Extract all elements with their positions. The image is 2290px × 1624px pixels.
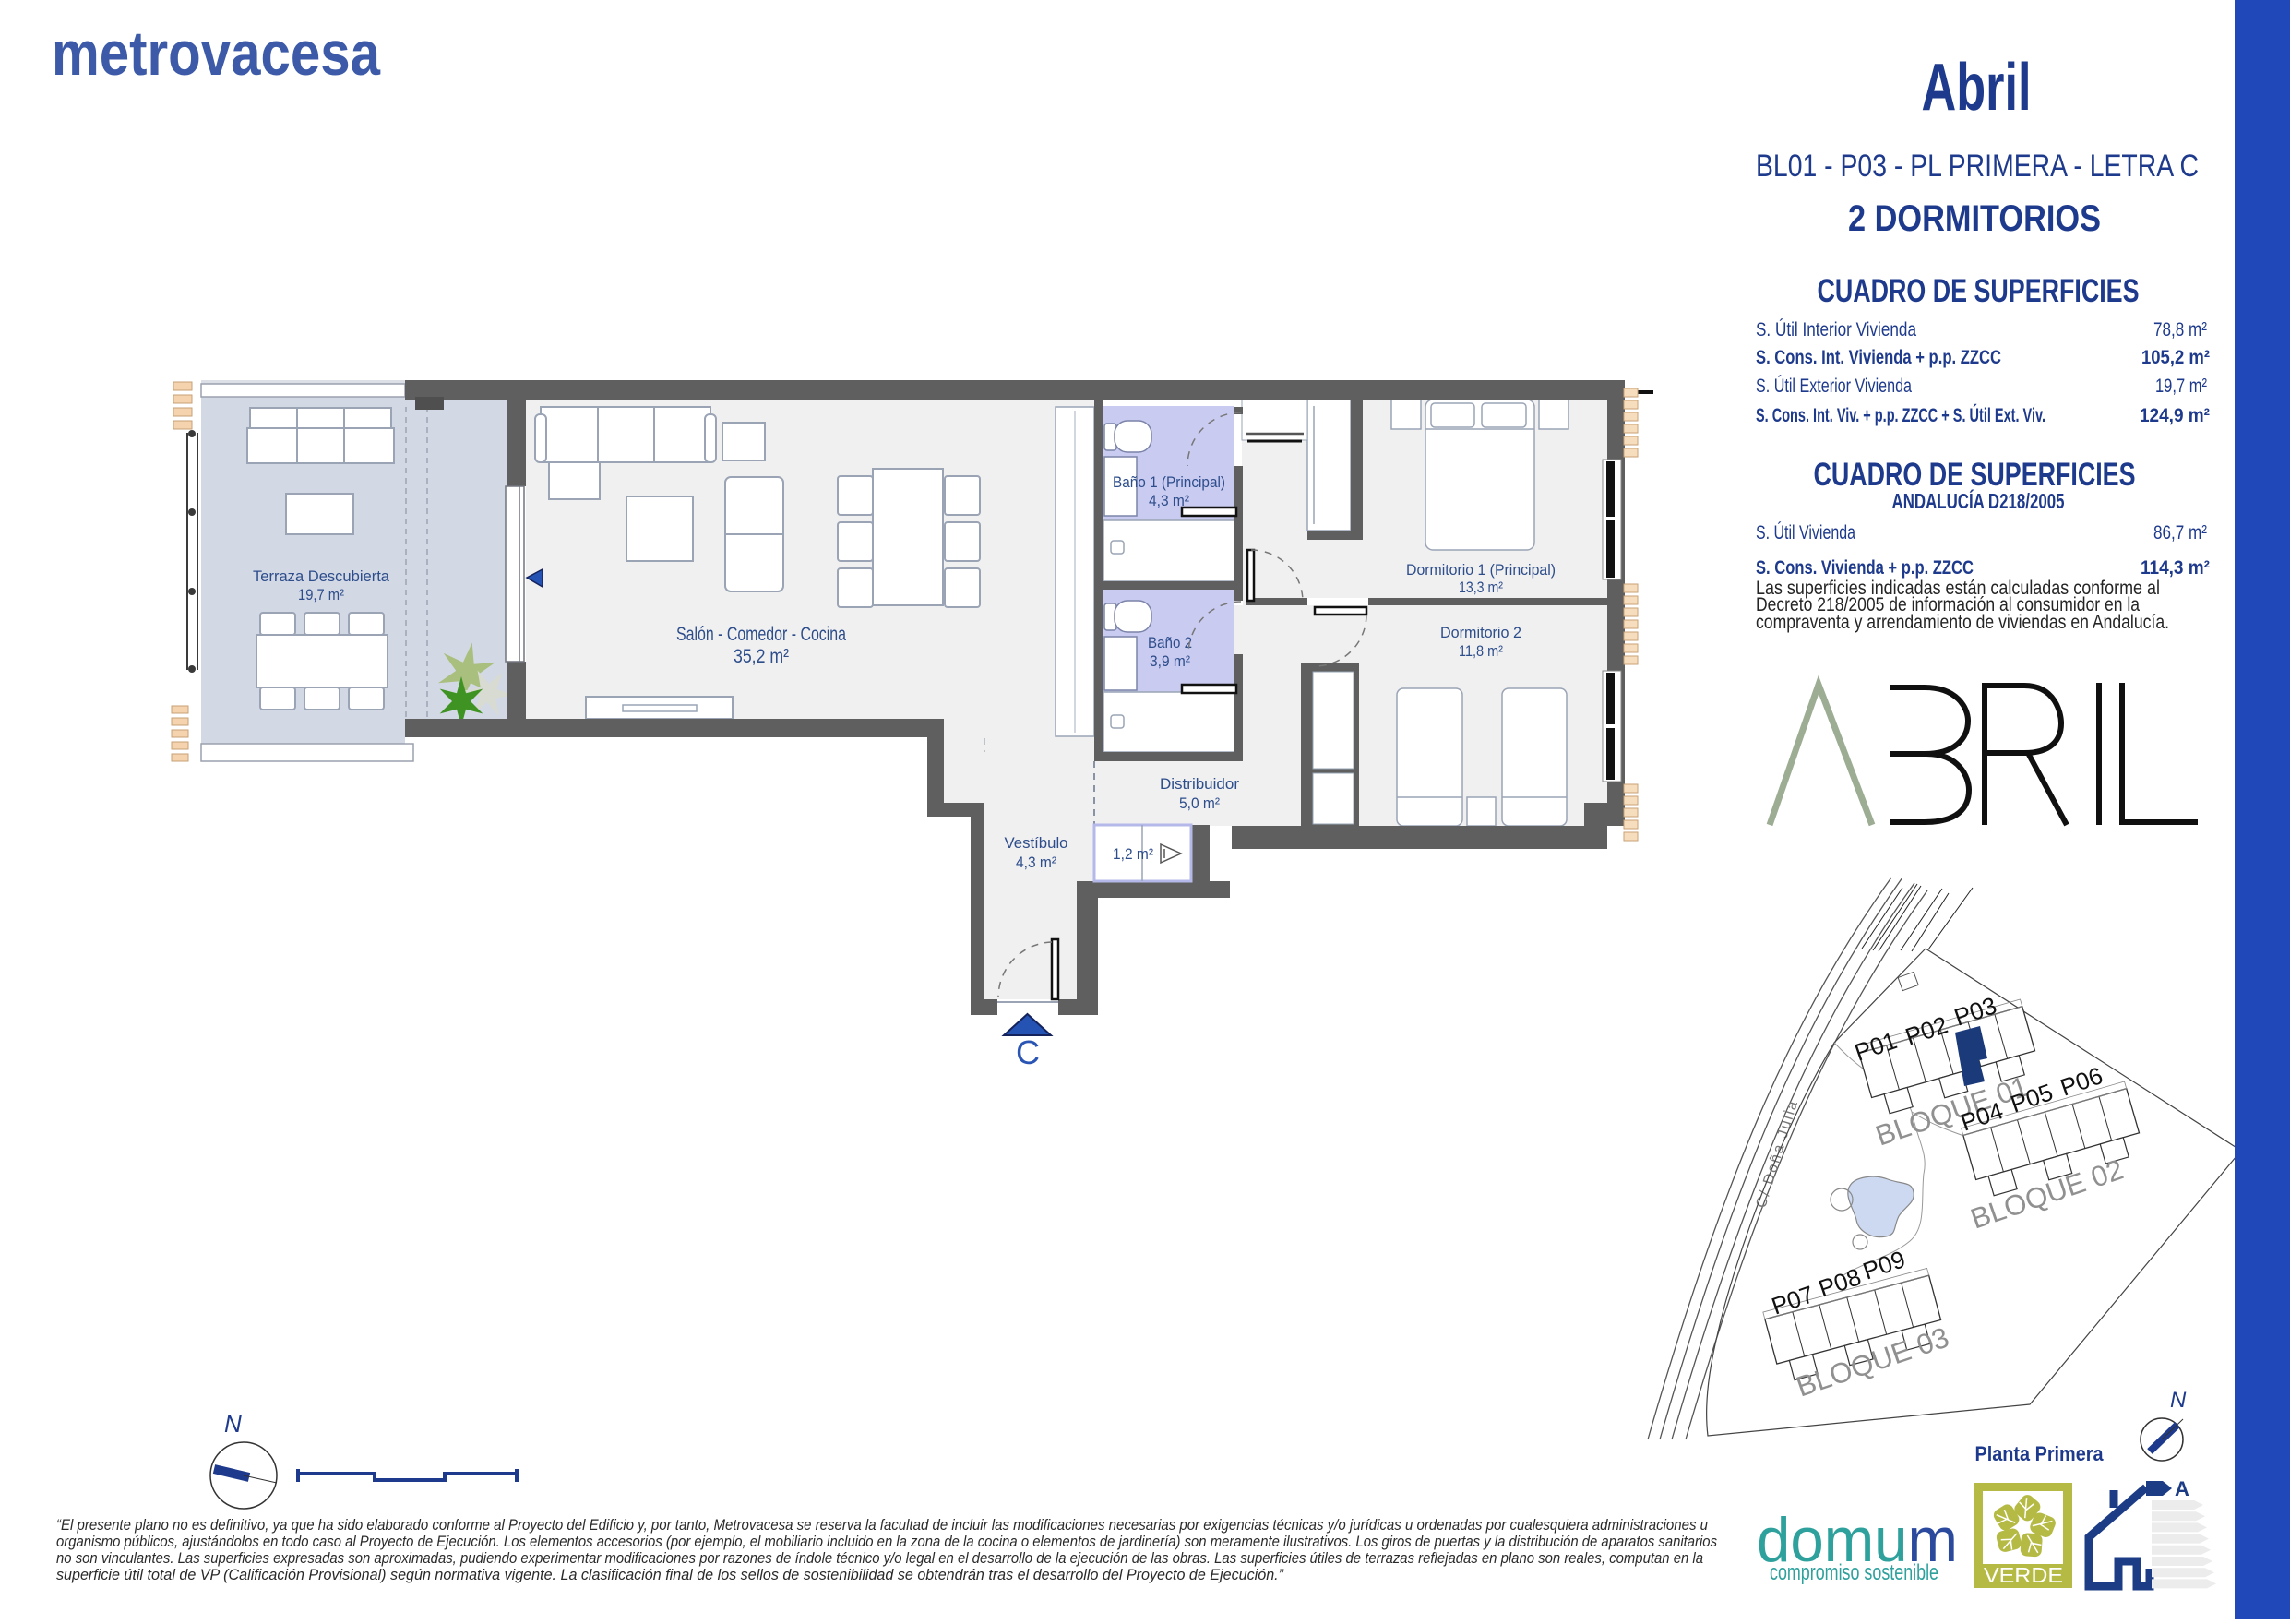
svg-text:78,8 m²: 78,8 m² [2153,319,2207,340]
svg-text:S. Cons. Int. Viv. + p.p. ZZCC: S. Cons. Int. Viv. + p.p. ZZCC + S. Útil… [1756,404,2045,426]
svg-text:C: C [1016,1033,1040,1071]
svg-text:“El presente plano no es defin: “El presente plano no es definitivo, ya … [56,1516,1708,1534]
svg-text:Baño 1 (Principal): Baño 1 (Principal) [1113,473,1225,491]
svg-text:2 DORMITORIOS: 2 DORMITORIOS [1848,198,2101,239]
svg-text:S. Útil Interior Vivienda: S. Útil Interior Vivienda [1756,319,1916,340]
svg-text:N: N [224,1410,242,1438]
svg-text:A: A [2175,1477,2189,1500]
svg-text:S. Útil Vivienda: S. Útil Vivienda [1756,522,1855,543]
svg-text:35,2 m²: 35,2 m² [734,646,789,667]
svg-text:ANDALUCÍA D218/2005: ANDALUCÍA D218/2005 [1892,488,2065,513]
svg-text:5,0 m²: 5,0 m² [1179,794,1220,812]
svg-text:Distribuidor: Distribuidor [1160,775,1239,793]
svg-text:Planta Primera: Planta Primera [1975,1442,2105,1465]
svg-text:11,8 m²: 11,8 m² [1459,642,1503,660]
svg-text:S. Útil Exterior Vivienda: S. Útil Exterior Vivienda [1756,376,1912,397]
svg-text:Abril: Abril [1922,51,2032,125]
svg-text:1,2 m²: 1,2 m² [1113,845,1153,863]
svg-text:Vestíbulo: Vestíbulo [1005,834,1068,852]
svg-text:19,7 m²: 19,7 m² [2155,376,2207,397]
svg-text:BL01 - P03 - PL PRIMERA - LETR: BL01 - P03 - PL PRIMERA - LETRA C [1756,149,2199,184]
svg-text:114,3 m²: 114,3 m² [2141,557,2210,579]
svg-text:Salón - Comedor - Cocina: Salón - Comedor - Cocina [676,624,846,645]
svg-text:no son vinculantes. Las superf: no son vinculantes. Las superficies expr… [56,1549,1703,1567]
svg-text:4,3 m²: 4,3 m² [1016,854,1056,871]
svg-text:13,3 m²: 13,3 m² [1459,579,1503,596]
svg-text:S. Cons. Int. Vivienda + p.p.: S. Cons. Int. Vivienda + p.p. ZZCC [1756,347,2001,368]
svg-text:S. Cons. Vivienda + p.p. ZZCC: S. Cons. Vivienda + p.p. ZZCC [1756,557,1974,579]
svg-text:VERDE: VERDE [1984,1563,2063,1587]
svg-text:compraventa y arrendamiento de: compraventa y arrendamiento de viviendas… [1756,612,2169,633]
svg-text:Terraza Descubierta: Terraza Descubierta [253,567,390,585]
svg-text:N: N [2170,1388,2187,1413]
svg-text:Dormitorio 2: Dormitorio 2 [1440,624,1521,641]
svg-text:86,7 m²: 86,7 m² [2153,522,2207,543]
svg-text:metrovacesa: metrovacesa [52,18,381,89]
svg-text:CUADRO DE SUPERFICIES: CUADRO DE SUPERFICIES [1818,273,2140,309]
svg-text:organismo públicos, ajustándol: organismo públicos, ajustándolos en todo… [56,1533,1717,1550]
svg-text:superficie útil total de VP (C: superficie útil total de VP (Calificació… [56,1566,1284,1583]
svg-text:105,2 m²: 105,2 m² [2141,347,2210,368]
svg-text:3,9 m²: 3,9 m² [1150,652,1190,670]
svg-text:19,7 m²: 19,7 m² [298,586,344,603]
svg-text:Dormitorio 1 (Principal): Dormitorio 1 (Principal) [1406,561,1556,579]
svg-text:CUADRO DE SUPERFICIES: CUADRO DE SUPERFICIES [1814,457,2136,493]
svg-text:compromiso sostenible: compromiso sostenible [1770,1560,1938,1585]
svg-text:124,9 m²: 124,9 m² [2140,405,2210,426]
svg-text:Baño 2: Baño 2 [1148,634,1192,651]
